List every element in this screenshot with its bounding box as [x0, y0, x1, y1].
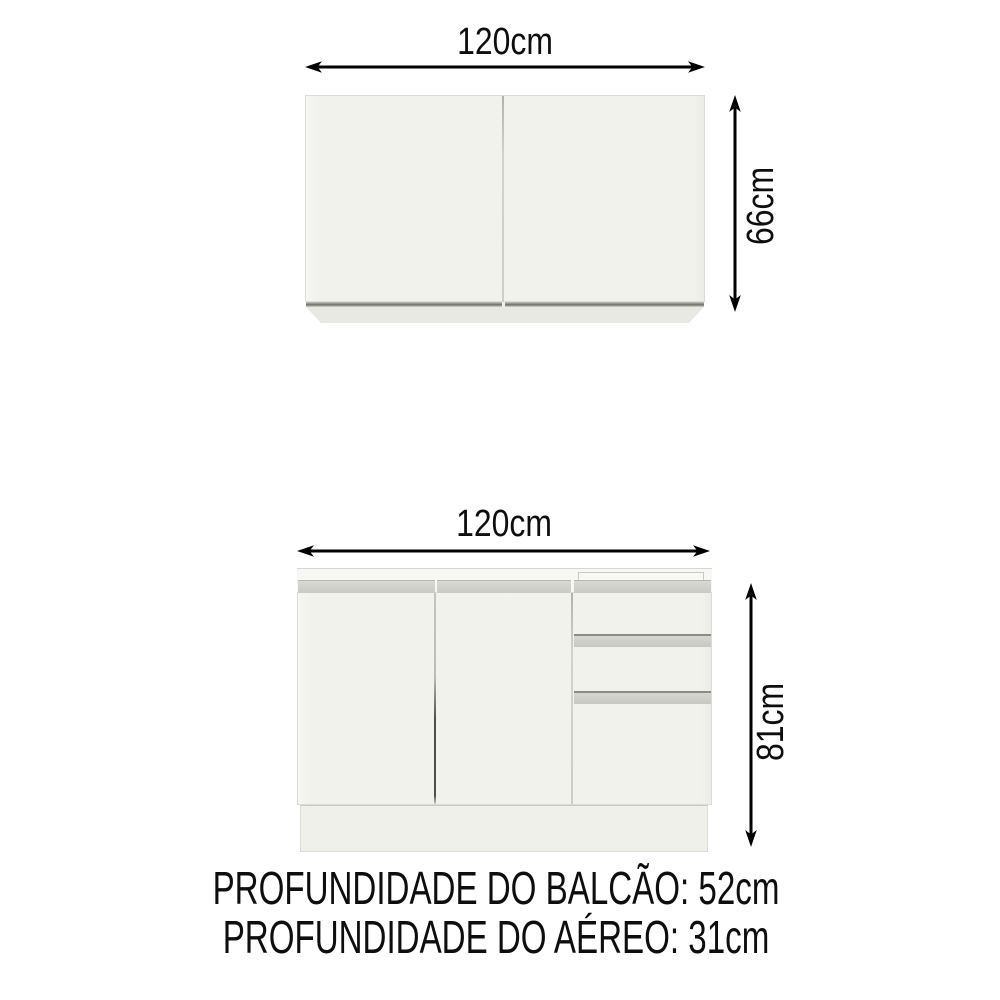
lower-cabinet-door-gap-shadow — [434, 593, 436, 804]
lower-width-dimension-arrow — [297, 543, 710, 559]
countertop-edge-strip-left — [298, 580, 435, 593]
depth-note-balcao: PROFUNDIDADE DO BALCÃO: 52cm — [139, 864, 853, 913]
upper-cabinet-width-label: 120cm — [305, 22, 705, 62]
countertop-edge-strip-right — [574, 580, 711, 593]
depth-notes: PROFUNDIDADE DO BALCÃO: 52cm PROFUNDIDAD… — [0, 864, 992, 962]
upper-cabinet-groove-gap — [502, 302, 505, 307]
upper-cabinet-doors — [305, 95, 705, 302]
lower-cabinet-width-value: 120cm — [457, 504, 553, 544]
lower-cabinet-countertop — [297, 568, 712, 592]
lower-cabinet-divider-right — [571, 593, 573, 804]
upper-width-dimension-arrow — [305, 59, 705, 75]
lower-cabinet-plinth — [300, 805, 708, 852]
upper-cabinet — [305, 95, 705, 323]
drawer-handle-strip-2 — [574, 691, 711, 704]
upper-cabinet-height-label: 66cm — [741, 167, 781, 245]
lower-cabinet-width-label: 120cm — [297, 504, 712, 544]
product-dimensions-diagram: 120cm 66cm 120cm — [0, 0, 1000, 1000]
upper-cabinet-handle-groove — [306, 302, 704, 307]
upper-cabinet-door-divider — [502, 96, 504, 302]
drawer-handle-strip-1 — [574, 634, 711, 647]
upper-cabinet-bottom-panel — [306, 307, 704, 323]
lower-cabinet-height-label: 81cm — [751, 683, 791, 761]
countertop-edge-strip-center — [437, 580, 571, 593]
upper-cabinet-width-value: 120cm — [457, 22, 553, 62]
depth-note-aereo: PROFUNDIDADE DO AÉREO: 31cm — [139, 913, 853, 962]
lower-cabinet — [297, 568, 712, 858]
